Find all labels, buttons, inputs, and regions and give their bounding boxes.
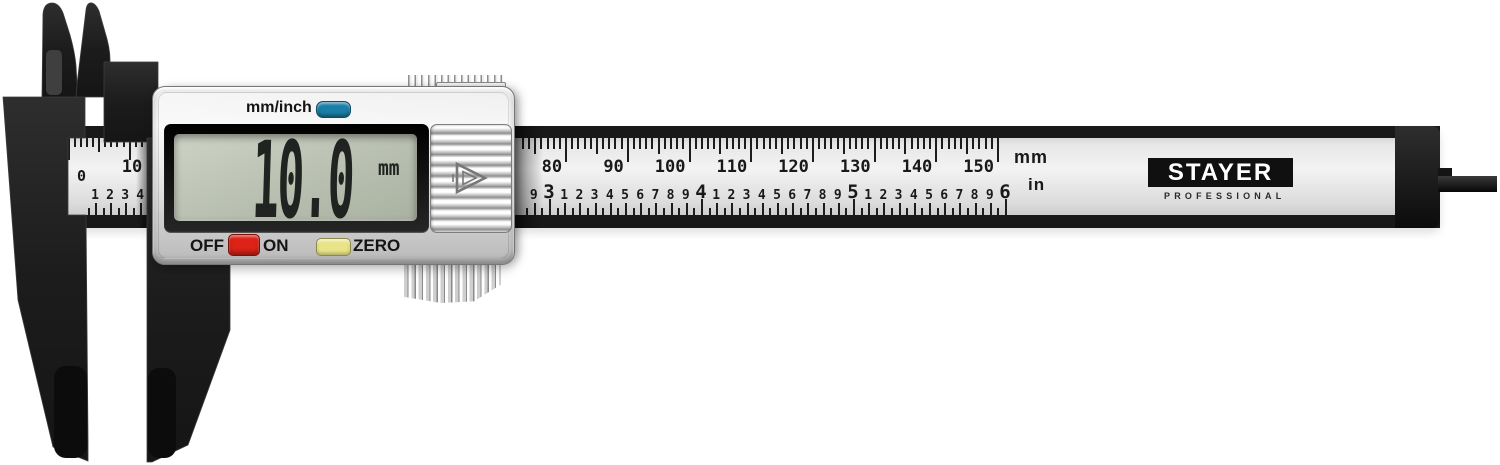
off-label: OFF	[190, 236, 224, 256]
thumb-grip[interactable]	[430, 124, 512, 233]
zero-button[interactable]	[316, 238, 351, 256]
lcd-unit: mm	[378, 156, 400, 180]
caliper-photo: STAYER PROFESSIONAL 80901001101201301401…	[0, 0, 1500, 465]
mm-inch-button[interactable]	[316, 101, 351, 118]
display-housing: mm/inch 10.0 mm OFF ON ZERO	[152, 86, 515, 265]
fixed-jaw-recess	[46, 50, 62, 95]
on-label: ON	[263, 236, 289, 256]
fixed-jaw-panel	[54, 366, 87, 458]
mode-label: mm/inch	[246, 99, 312, 117]
triangle-emblem	[449, 158, 491, 198]
zero-label: ZERO	[353, 236, 400, 256]
slider-bridge	[104, 62, 158, 142]
lcd-value: 10.0	[251, 134, 355, 221]
lcd-screen: 10.0 mm	[174, 134, 417, 221]
on-off-button[interactable]	[228, 234, 260, 256]
slider-jaw-panel	[148, 368, 176, 458]
lcd-bezel: 10.0 mm	[164, 124, 429, 233]
